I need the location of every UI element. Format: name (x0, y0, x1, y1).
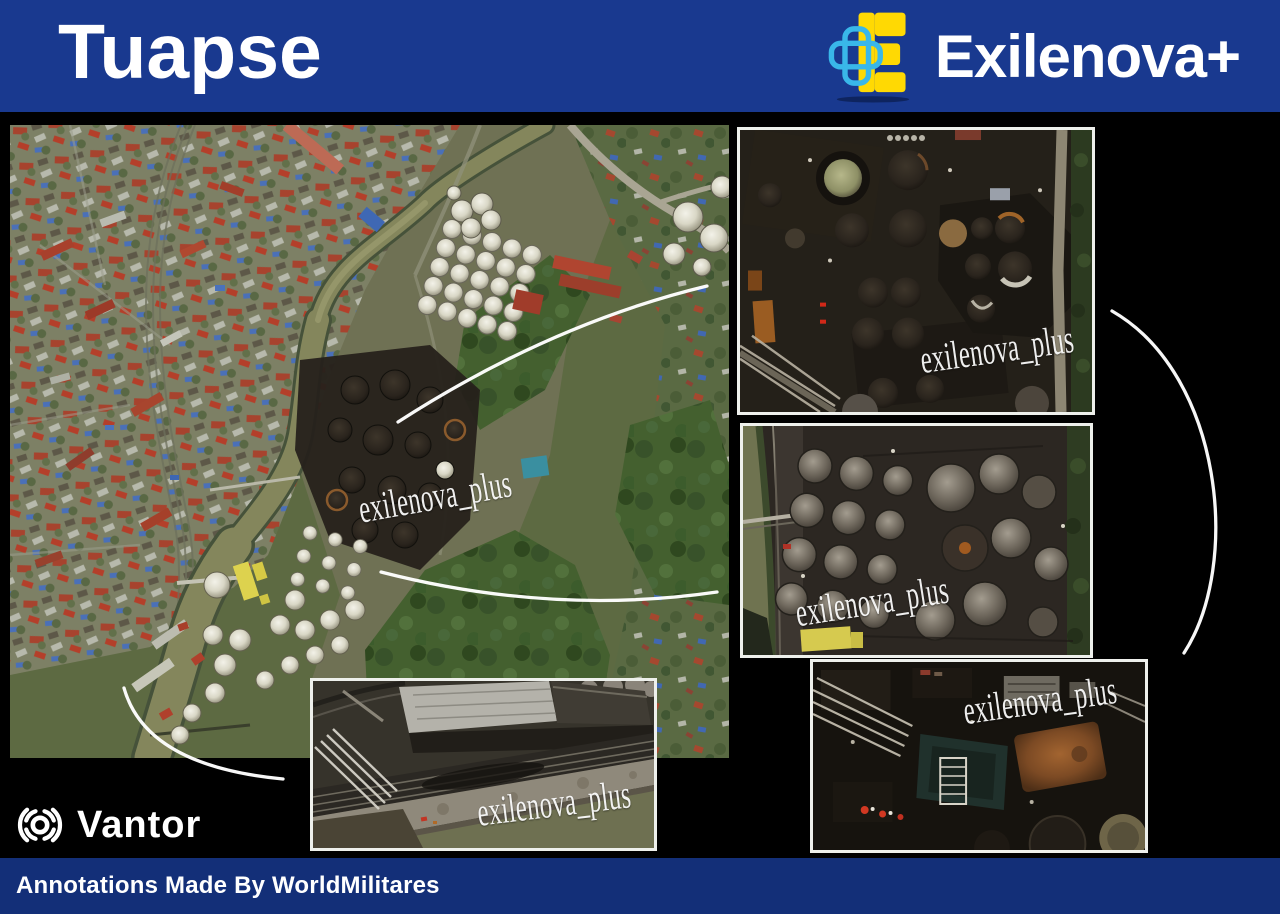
main-satellite-art (10, 125, 729, 758)
annotation-line-right (1112, 311, 1216, 653)
crop2-art (743, 426, 1090, 655)
brand-block: Exilenova+ (827, 0, 1240, 112)
crop1-art (740, 130, 1092, 412)
page-title: Tuapse (58, 8, 322, 97)
crop4-art (313, 681, 654, 848)
vantor-aperture-icon (16, 801, 64, 849)
detail-crop-processing-unit (810, 659, 1148, 853)
exilenova-plus-logo-icon (827, 9, 919, 103)
credit-text: Annotations Made By WorldMilitares (16, 872, 440, 900)
main-satellite-image (10, 125, 729, 758)
infographic-page: Tuapse Exilenova+ (0, 0, 1280, 914)
brand-name: Exilenova+ (935, 22, 1240, 91)
footer-bar: Annotations Made By WorldMilitares (0, 858, 1280, 914)
vantor-logo-text: Vantor (77, 804, 201, 847)
vantor-logo: Vantor (16, 801, 201, 849)
header-bar: Tuapse Exilenova+ (0, 0, 1280, 112)
detail-crop-burned-tanks-north (737, 127, 1095, 415)
detail-crop-pier (310, 678, 657, 851)
detail-crop-tank-rows (740, 423, 1093, 658)
crop3-art (813, 662, 1145, 850)
